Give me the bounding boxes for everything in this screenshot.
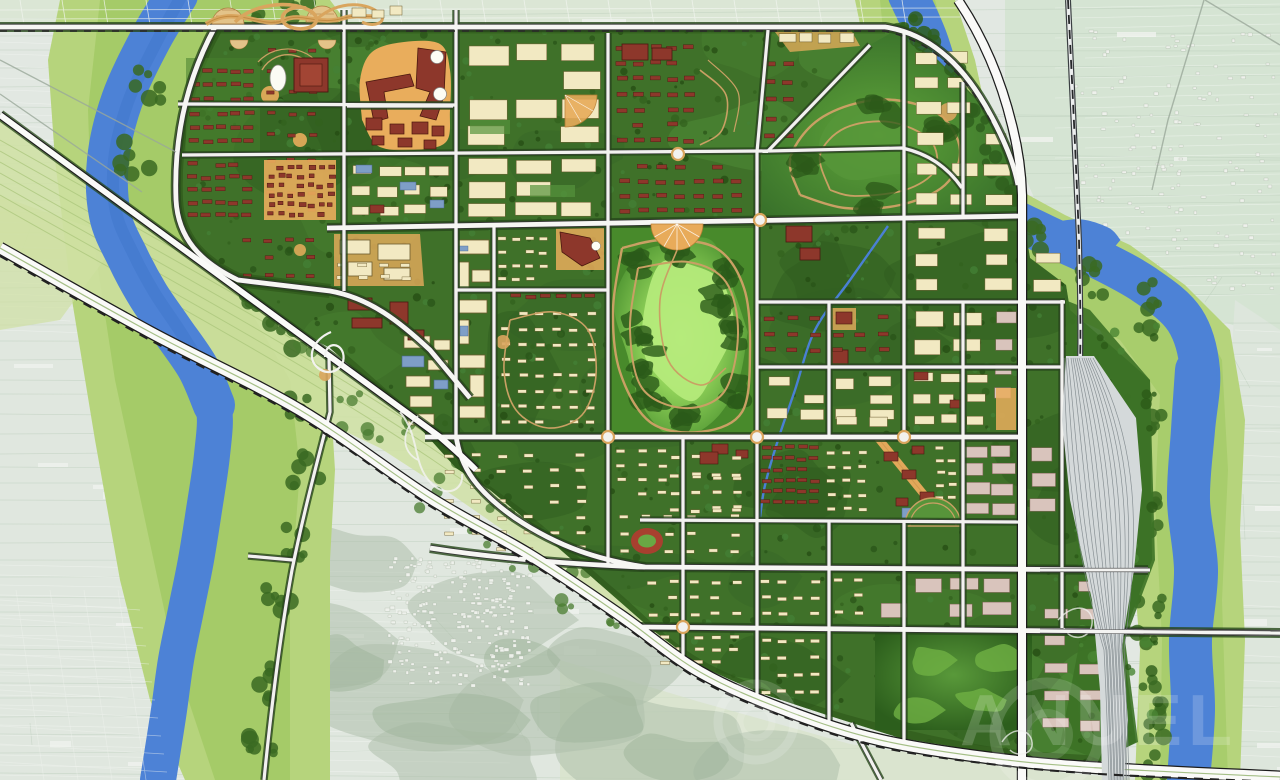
svg-text:ANUEL: ANUEL [960,681,1238,761]
